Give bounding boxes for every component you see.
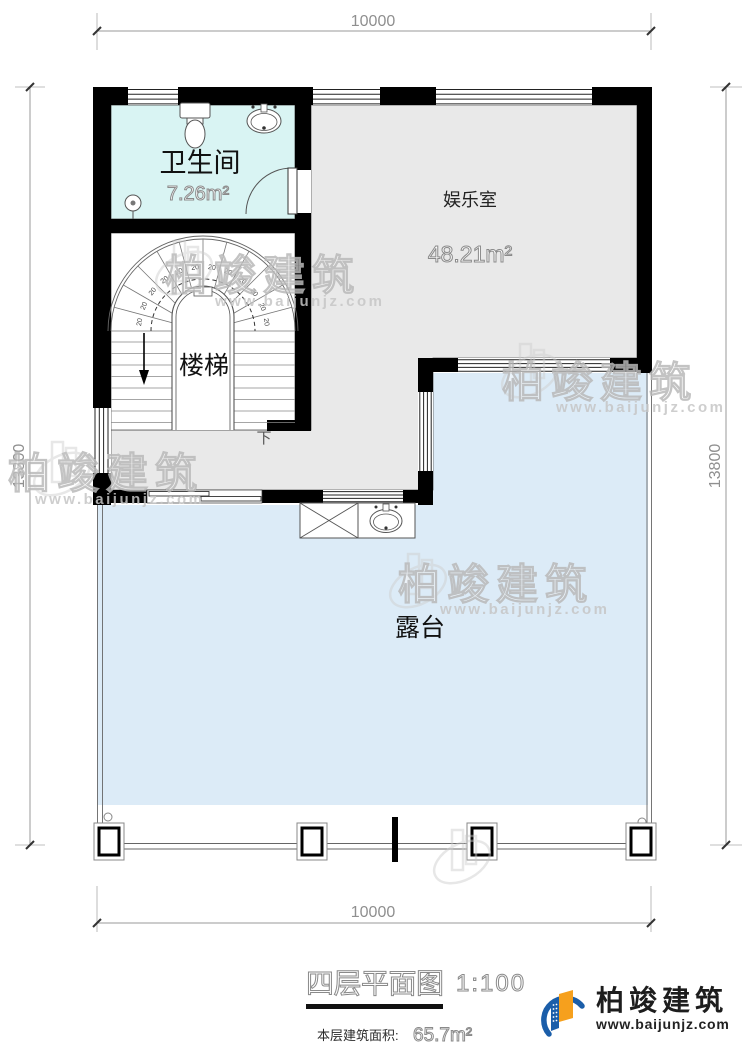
company-logo: 柏竣建筑 www.baijunjz.com [544,984,730,1034]
entertainment-area: 48.21m² [428,241,513,267]
watermark-url: www.baijunjz.com [555,399,725,416]
window [313,87,380,105]
floor-area-value: 65.7m² [413,1025,472,1046]
dimension-top: 10000 [93,13,655,50]
window [436,87,592,105]
railing-divider [392,817,398,862]
logo-url: www.baijunjz.com [595,1016,730,1032]
logo-name: 柏竣建筑 [596,984,728,1016]
dimension-bottom: 10000 [93,886,655,932]
bathroom-area: 7.26m² [167,183,230,205]
plan-title: 四层平面图 [306,968,444,999]
floor-plan-drawing: 10000 10000 13800 13800 [0,0,750,1053]
watermark-url: www.baijunjz.com [34,491,204,508]
railing-post [297,823,327,860]
stairs-label: 楼梯 [179,352,229,380]
right-dimension-label: 13800 [707,444,724,489]
railing-post [626,823,656,860]
watermark: 柏竣建筑 www.baijunjz.com [8,442,204,508]
floor-area-label: 本层建筑面积: [317,1028,399,1043]
watermark-url: www.baijunjz.com [214,293,384,310]
watermark-url: www.baijunjz.com [439,601,609,618]
title-block: 四层平面图 1:100 本层建筑面积: 65.7m² [306,968,526,1046]
laundry-sink-icon [358,503,415,538]
dimension-right: 13800 [707,83,742,849]
bottom-dimension-label: 10000 [351,904,396,921]
plan-scale: 1:100 [456,970,526,997]
title-underline [306,1004,443,1009]
washing-machine-icon [300,503,358,538]
top-dimension-label: 10000 [351,13,396,30]
window [323,490,403,503]
tread-depth-label: 20 [136,318,144,327]
watermark-text: 柏竣建筑 [8,450,204,497]
floor-plan-page: 10000 10000 13800 13800 [0,0,750,1053]
window [128,87,178,105]
tread-depth-label: 20 [262,318,270,327]
bathroom-label: 卫生间 [160,148,241,178]
watermark-text: 柏竣建筑 [165,252,361,299]
terrace-label: 露台 [395,614,445,642]
stairs-down-label: 下 [256,430,271,447]
company-logo-icon [544,990,582,1034]
railing-post [94,823,124,860]
window [418,392,433,471]
entertainment-label: 娱乐室 [443,190,497,210]
